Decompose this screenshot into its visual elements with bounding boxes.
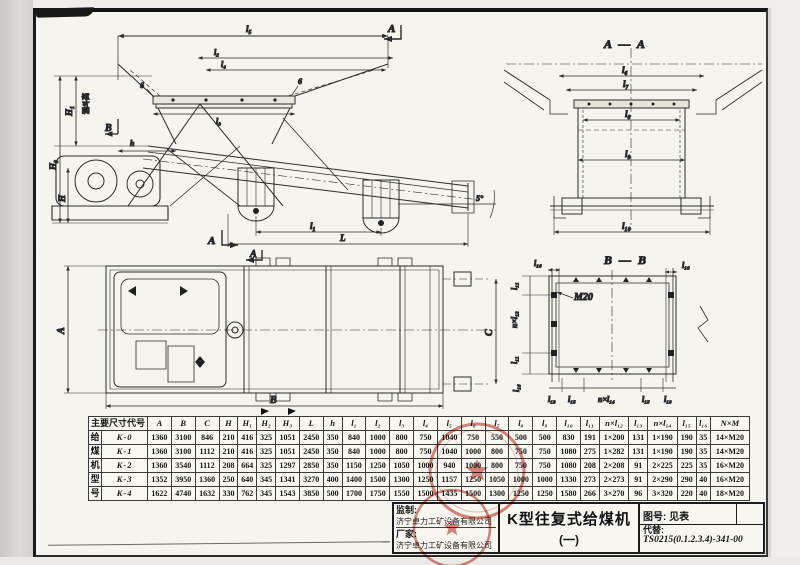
dimension-value: 1000 — [533, 473, 557, 487]
dimension-value: 1050 — [390, 459, 414, 473]
dimension-value: 3100 — [171, 431, 195, 445]
column-header: l₃ — [390, 417, 414, 431]
dimension-value: 1543 — [276, 487, 300, 501]
dimension-value: 1360 — [148, 431, 172, 445]
dimension-value: 762 — [238, 487, 257, 501]
dim-label-nxl14: n×l₁₄ — [598, 395, 615, 404]
section-bb-view: B — B M20 — [504, 246, 767, 416]
column-header: l₁₃ — [629, 417, 648, 431]
column-header: H — [219, 417, 238, 431]
column-header: n×l₁₄ — [648, 417, 678, 431]
dimension-value: 750 — [533, 459, 557, 473]
dimension-value: 1000 — [366, 445, 390, 459]
scan-artifact-blotch — [36, 7, 94, 18]
dimension-value: 1360 — [195, 473, 219, 487]
dimension-value: 1000 — [366, 431, 390, 445]
dimension-value: 800 — [390, 431, 414, 445]
dimension-value: 210 — [219, 431, 238, 445]
dim-label-l15-left: l₁₅ — [568, 395, 576, 404]
dimension-value: 400 — [323, 473, 342, 487]
dimension-value: 325 — [257, 445, 276, 459]
dim-label-h: h — [130, 139, 135, 148]
dimension-value: 273 — [580, 473, 599, 487]
dimension-value: 1500 — [366, 473, 390, 487]
revision-flag — [261, 408, 270, 417]
column-header: h — [323, 417, 342, 431]
title-block-number-section: 图号: 见表 代替: TS0215(0.1.2.3.4)-341-00 — [640, 504, 763, 552]
dimension-value: 35 — [696, 459, 710, 473]
dimension-value: 191 — [580, 431, 599, 445]
scan-artifact-line — [48, 541, 390, 546]
dimension-value: 350 — [323, 459, 342, 473]
dimension-value: 96 — [629, 487, 648, 501]
dimension-value: 800 — [390, 445, 414, 459]
dimension-value: 40 — [696, 473, 710, 487]
section-b-label: B — [104, 123, 112, 134]
side-elevation-view: l₅ A l₂ l₄ 6 6 — [48, 18, 503, 250]
dimension-value: 35 — [696, 431, 710, 445]
weld-size-label-left: 6 — [140, 81, 144, 90]
dimension-value: 840 — [342, 445, 366, 459]
dimension-value: 14×M20 — [710, 431, 749, 445]
dimension-value: 220 — [677, 487, 696, 501]
dim-label-C: C — [484, 329, 495, 336]
row-group-char: 型 — [89, 473, 102, 487]
column-header: l₁₆ — [696, 417, 710, 431]
column-header: l₁₅ — [677, 417, 696, 431]
dimension-value: 416 — [238, 445, 257, 459]
company-seal-titleblock — [404, 496, 500, 558]
section-bb-title: B — B — [603, 253, 648, 267]
dim-label-l10: l₁₀ — [622, 221, 631, 231]
dimension-value: 3540 — [171, 459, 195, 473]
drawing-number: 图号: 见表 — [640, 504, 737, 524]
dim-label-l11-top: l₁₁ — [510, 282, 519, 290]
dimension-value: 131 — [629, 431, 648, 445]
drawing-subtitle: (一) — [559, 531, 579, 548]
dim-label-H3: H₃ — [48, 160, 58, 171]
dimension-value: 640 — [238, 473, 257, 487]
dimension-value: 16×M20 — [710, 473, 749, 487]
dim-label-l11-bottom: l₁₁ — [510, 356, 519, 364]
dimension-value: 750 — [533, 445, 557, 459]
scan-edge — [771, 0, 800, 565]
dim-label-l13-left: l₁₃ — [548, 395, 556, 404]
dimension-value: 325 — [257, 459, 276, 473]
dimension-value: 1632 — [195, 487, 219, 501]
dimension-value: 3270 — [299, 473, 323, 487]
dim-label-l9: l₉ — [625, 149, 631, 159]
hopper-height-label: 漏斗高 — [81, 93, 90, 114]
dimension-value: 18×M20 — [710, 487, 749, 501]
dimension-value: 290 — [677, 473, 696, 487]
dimension-value: 2×273 — [599, 473, 629, 487]
table-row: 煤K-1136031001112210416325105124503508401… — [89, 445, 750, 459]
dimension-value: 350 — [323, 445, 342, 459]
dim-label-l16-bottomleft: l₁₆ — [512, 384, 521, 392]
model-code: K-0 — [102, 431, 148, 445]
dimension-value: 1150 — [342, 459, 366, 473]
model-code: K-2 — [102, 459, 148, 473]
dim-label-A: A — [56, 327, 67, 335]
row-group-char: 号 — [89, 487, 102, 501]
row-group-char: 煤 — [89, 445, 102, 459]
column-header: l₉ — [533, 417, 557, 431]
column-header: H₁ — [238, 417, 257, 431]
revision-flag — [288, 408, 297, 417]
dimension-value: 1×282 — [599, 445, 629, 459]
section-a-label-top: A — [387, 23, 395, 35]
dimension-value: 210 — [219, 445, 238, 459]
dimension-value: 1360 — [148, 459, 172, 473]
section-aa-title: A — A — [603, 37, 647, 51]
dim-label-l8: l₈ — [625, 109, 631, 119]
dimension-value: 14×M20 — [710, 445, 749, 459]
column-header: l₁₀ — [557, 417, 581, 431]
weld-size-label-right: 6 — [298, 77, 302, 86]
column-header: C — [195, 417, 219, 431]
dimension-value: 350 — [323, 431, 342, 445]
bolt-size-label: M20 — [573, 292, 593, 303]
angle-label: 5° — [476, 194, 484, 203]
column-header: l₁₁ — [580, 417, 599, 431]
dim-label-H1: H₁ — [64, 106, 74, 117]
dimension-value: 325 — [257, 431, 276, 445]
row-group-char: 给 — [89, 431, 102, 445]
column-header: l₂ — [366, 417, 390, 431]
dimension-value: 500 — [533, 431, 557, 445]
column-header: n×l₁₂ — [599, 417, 629, 431]
dimension-value: 1112 — [195, 445, 219, 459]
dims-table-body: 给K-0136031008462104163251051245035084010… — [89, 431, 750, 501]
column-header: H₂ — [257, 417, 276, 431]
dimension-value: 1330 — [557, 473, 581, 487]
dimension-value: 500 — [323, 487, 342, 501]
table-row: 机K-2136035401112208664325129728503501150… — [89, 459, 750, 473]
dimension-value: 16×M20 — [710, 459, 749, 473]
dim-label-l16-topleft: l₁₆ — [534, 259, 542, 268]
scan-edge — [0, 557, 800, 565]
dim-label-l2: l₂ — [214, 48, 219, 57]
dim-label-l4: l₄ — [221, 60, 226, 69]
dimension-value: 1352 — [148, 473, 172, 487]
section-a-label-plan: A — [249, 249, 257, 260]
dim-label-l13-right: l₁₃ — [664, 395, 672, 404]
dimension-value: 35 — [696, 445, 710, 459]
column-header: N×M — [710, 417, 749, 431]
dimension-value: 190 — [677, 445, 696, 459]
dimension-value: 2450 — [299, 445, 323, 459]
dimension-value: 1080 — [557, 445, 581, 459]
dimension-value: 1622 — [148, 487, 172, 501]
dimension-value: 416 — [238, 431, 257, 445]
row-group-char: 机 — [89, 459, 102, 473]
dimension-value: 1051 — [276, 431, 300, 445]
dimension-value: 3×320 — [648, 487, 678, 501]
dim-label-L: L — [339, 233, 346, 243]
column-header: B — [171, 417, 195, 431]
model-code: K-3 — [102, 473, 148, 487]
dim-label-l7: l₇ — [623, 79, 629, 89]
dimension-value: 2×208 — [599, 459, 629, 473]
dimension-value: 664 — [238, 459, 257, 473]
dimension-value: 1341 — [276, 473, 300, 487]
dimension-value: 1051 — [276, 445, 300, 459]
dimension-value: 1750 — [366, 487, 390, 501]
dimension-value: 1250 — [533, 487, 557, 501]
dimension-value: 1×190 — [648, 431, 678, 445]
dimension-value: 830 — [557, 431, 581, 445]
dimension-value: 3100 — [171, 445, 195, 459]
dimension-value: 846 — [195, 431, 219, 445]
dimension-value: 91 — [629, 459, 648, 473]
model-code: K-1 — [102, 445, 148, 459]
dimension-value: 1580 — [557, 487, 581, 501]
dimension-value: 2×225 — [648, 459, 678, 473]
drawing-sheet: l₅ A l₂ l₄ 6 6 — [33, 8, 768, 557]
scan-edge — [0, 0, 33, 565]
dimension-value: 2850 — [299, 459, 323, 473]
plan-view: A B C A — [48, 246, 508, 416]
dimension-value: 1080 — [557, 459, 581, 473]
replace-number: TS0215(0.1.2.3.4)-341-00 — [643, 535, 760, 545]
dimension-value: 330 — [219, 487, 238, 501]
dim-label-l16-topright: l₁₆ — [682, 261, 690, 270]
dim-label-nxl12: n×l₁₂ — [510, 311, 519, 328]
scan-edge — [0, 0, 800, 8]
dimension-value: 3850 — [299, 487, 323, 501]
dimension-value: 1400 — [342, 473, 366, 487]
dim-label-l5: l₅ — [246, 24, 252, 34]
dimension-value: 1300 — [390, 473, 414, 487]
column-header: L — [299, 417, 323, 431]
dimension-value: 1250 — [366, 459, 390, 473]
title-block-empty-cell — [737, 504, 763, 524]
dim-label-l15-right: l₁₅ — [642, 395, 650, 404]
dim-label-B: B — [269, 395, 277, 406]
dimension-value: 131 — [629, 445, 648, 459]
table-row: 给K-0136031008462104163251051245035084010… — [89, 431, 750, 445]
model-code: K-4 — [102, 487, 148, 501]
dimension-value: 1×190 — [648, 445, 678, 459]
section-aa-view: A — A — [504, 18, 767, 246]
dimension-value: 1112 — [195, 459, 219, 473]
table-corner-header: 主要尺寸代号 — [89, 417, 148, 431]
dimension-value: 345 — [257, 473, 276, 487]
column-header: l₁ — [342, 417, 366, 431]
dimension-value: 3×270 — [599, 487, 629, 501]
dimension-value: 4740 — [171, 487, 195, 501]
table-row: 型K-3135239501360250640345134132704001400… — [89, 473, 750, 487]
dimension-value: 1360 — [148, 445, 172, 459]
dimension-value: 91 — [629, 473, 648, 487]
dimension-value: 1297 — [276, 459, 300, 473]
dimension-value: 840 — [342, 431, 366, 445]
replace-label: 代替: — [643, 525, 760, 535]
dimension-value: 250 — [219, 473, 238, 487]
dimension-value: 2450 — [299, 431, 323, 445]
dimension-value: 1×200 — [599, 431, 629, 445]
dimension-value: 40 — [696, 487, 710, 501]
dimension-value: 208 — [580, 459, 599, 473]
dimension-value: 208 — [219, 459, 238, 473]
dim-label-l1: l₁ — [310, 221, 316, 231]
table-header-row: 主要尺寸代号 ABCHH₁H₂H₃Lhl₁l₂l₃l₄l₅l₆l₇l₈l₉l₁₀… — [89, 417, 750, 431]
dimension-value: 3950 — [171, 473, 195, 487]
dimension-value: 266 — [580, 487, 599, 501]
dimension-value: 1700 — [342, 487, 366, 501]
dimensions-table: 主要尺寸代号 ABCHH₁H₂H₃Lhl₁l₂l₃l₄l₅l₆l₇l₈l₉l₁₀… — [88, 416, 750, 501]
dimension-value: 190 — [677, 431, 696, 445]
dimension-value: 275 — [580, 445, 599, 459]
column-header: A — [148, 417, 172, 431]
dimension-value: 345 — [257, 487, 276, 501]
dim-label-l6: l₆ — [622, 65, 628, 75]
dimension-value: 2×290 — [648, 473, 678, 487]
dimension-value: 225 — [677, 459, 696, 473]
column-header: H₃ — [276, 417, 300, 431]
dim-label-H: H — [57, 194, 67, 203]
